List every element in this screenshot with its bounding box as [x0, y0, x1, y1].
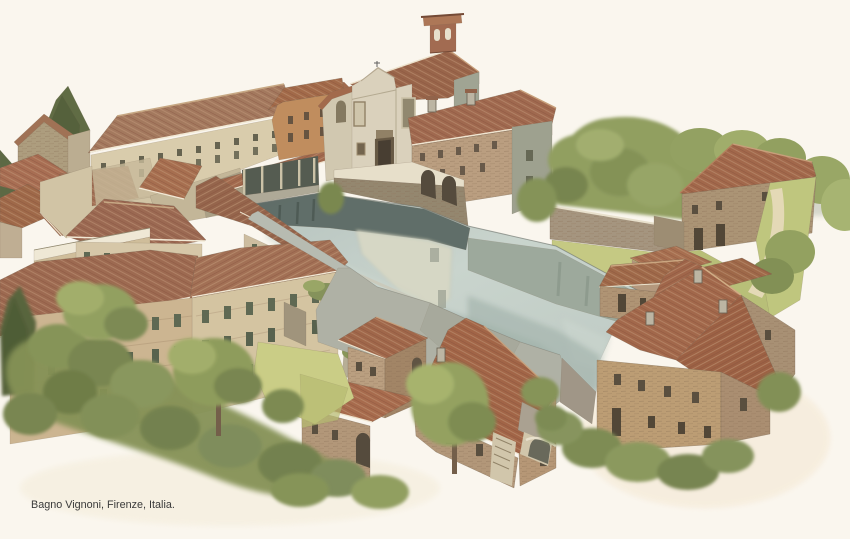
svg-text:Bagno Vignoni, Firenze, Italia: Bagno Vignoni, Firenze, Italia.	[31, 499, 175, 511]
